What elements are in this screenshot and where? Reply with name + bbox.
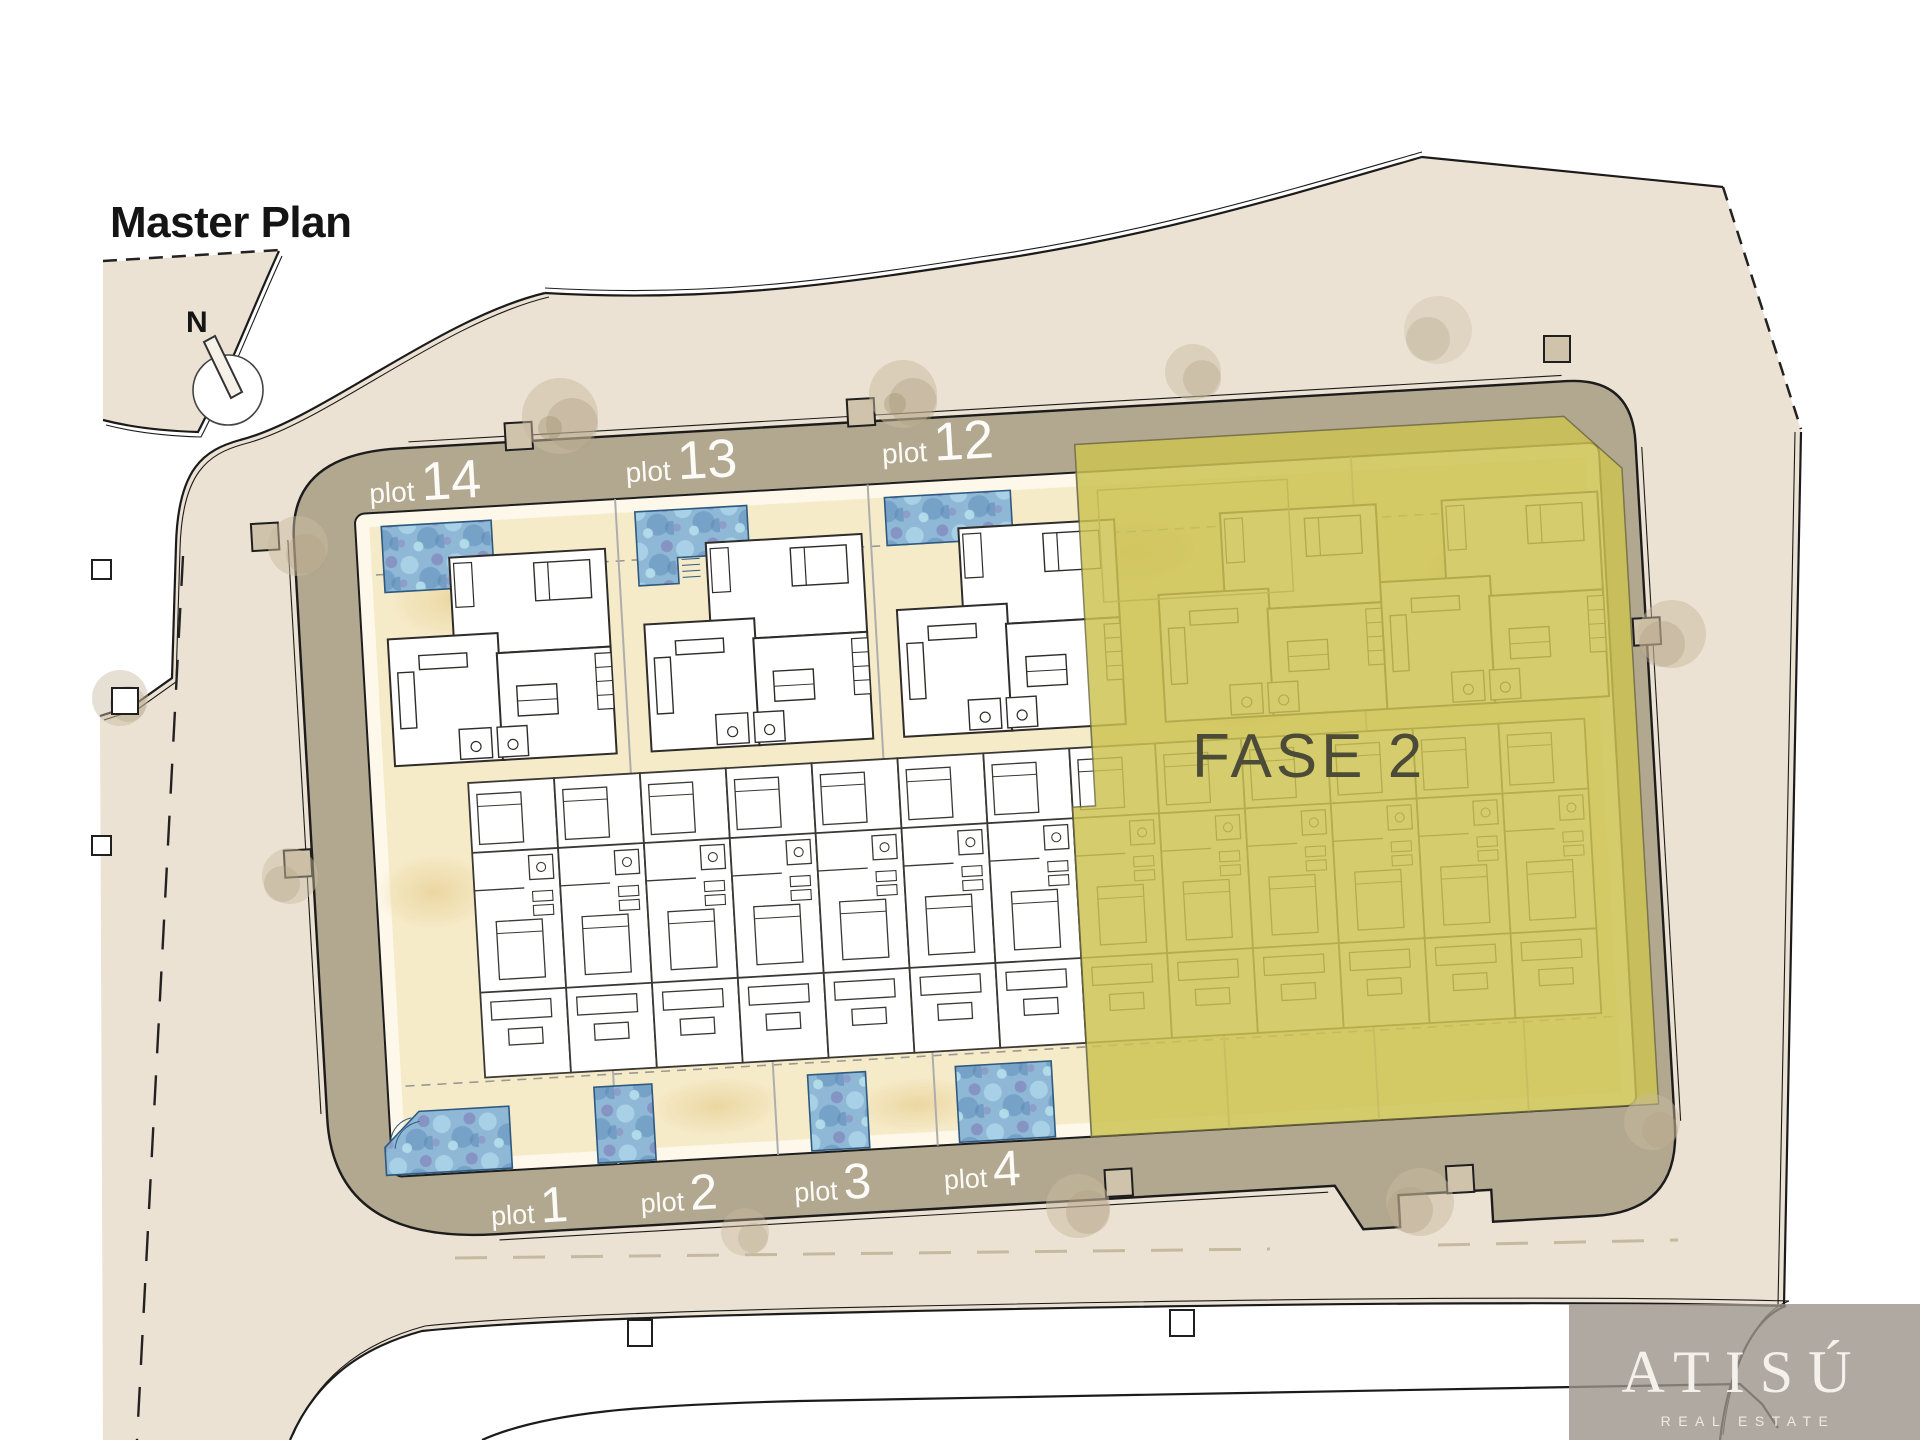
plot-label-word: plot bbox=[490, 1199, 536, 1231]
tree bbox=[1046, 1174, 1110, 1238]
tree bbox=[1638, 600, 1706, 668]
plot-label-number: 13 bbox=[675, 428, 738, 491]
plot-label-word: plot bbox=[368, 476, 415, 510]
development-block: plot14 plot13 plot12 plot1 plot2 plot3 p… bbox=[246, 354, 1694, 1291]
page-title: Master Plan bbox=[110, 198, 351, 247]
logo-tagline-text: REAL ESTATE bbox=[1661, 1413, 1836, 1429]
tree bbox=[721, 1208, 769, 1256]
plot-label-number: 12 bbox=[932, 409, 995, 472]
tree bbox=[869, 360, 937, 428]
plot-label-word: plot bbox=[881, 436, 928, 470]
tree bbox=[1165, 344, 1221, 400]
phase2-label: FASE 2 bbox=[1192, 722, 1426, 791]
tree bbox=[1404, 296, 1472, 364]
compass-north-label: N bbox=[186, 306, 208, 339]
pool-plot-4 bbox=[955, 1061, 1055, 1142]
plot-label-number: 4 bbox=[991, 1140, 1022, 1198]
plot-label-word: plot bbox=[943, 1163, 989, 1195]
plot-label-word: plot bbox=[625, 455, 672, 489]
tree bbox=[1624, 1094, 1680, 1150]
logo-brand-text: ATISÚ bbox=[1621, 1339, 1866, 1405]
master-plan-page: plot14 plot13 plot12 plot1 plot2 plot3 p… bbox=[0, 0, 1920, 1440]
pool-plot-3 bbox=[808, 1072, 870, 1151]
plot-label-number: 3 bbox=[842, 1153, 873, 1211]
plot-label-word: plot bbox=[640, 1186, 686, 1218]
plot-label-number: 14 bbox=[419, 449, 482, 512]
tree bbox=[522, 378, 598, 454]
pool-plot-2 bbox=[594, 1084, 656, 1163]
tree bbox=[1386, 1168, 1454, 1236]
tree bbox=[268, 516, 328, 576]
plot-label-word: plot bbox=[793, 1175, 839, 1207]
brand-logo: ATISÚ REAL ESTATE bbox=[1569, 1304, 1920, 1440]
plot-label-number: 2 bbox=[688, 1163, 719, 1221]
master-plan-map: plot14 plot13 plot12 plot1 plot2 plot3 p… bbox=[0, 0, 1920, 1440]
tree bbox=[262, 848, 318, 904]
plot-label-number: 1 bbox=[539, 1176, 570, 1234]
